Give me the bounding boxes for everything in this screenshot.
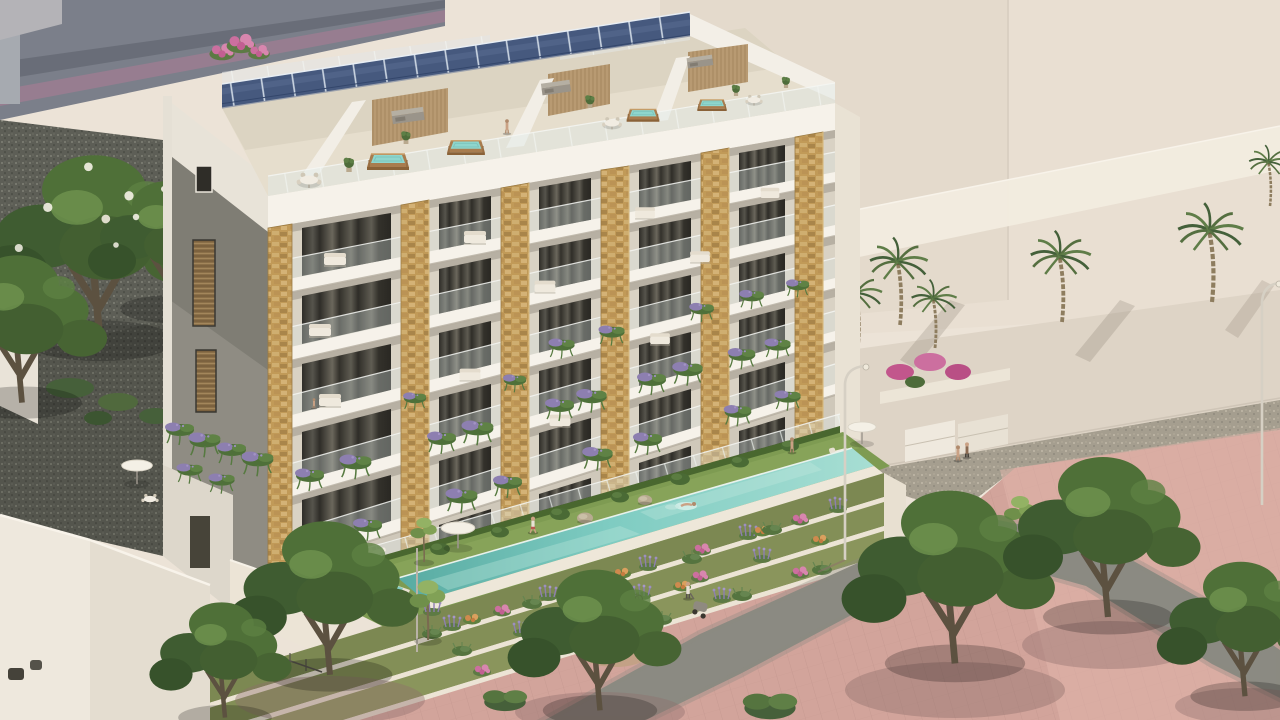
shrub (743, 694, 797, 720)
side-window-slatted (196, 350, 216, 412)
hedgeball (670, 473, 690, 485)
side-window-slatted (193, 240, 215, 326)
boulder (638, 495, 652, 505)
patio-chair (8, 668, 24, 680)
scene-svg (0, 0, 1280, 720)
side-facade (163, 96, 268, 612)
hottub (697, 100, 726, 111)
shrub-patch (84, 411, 112, 425)
furn (761, 188, 780, 199)
hedgeball (550, 508, 570, 520)
furn (324, 253, 346, 266)
furn (650, 333, 670, 345)
furn (460, 369, 481, 381)
furn (309, 324, 331, 337)
shrub-patch (98, 393, 138, 411)
furn (464, 231, 486, 244)
right-side-return (835, 103, 860, 440)
hottub (367, 154, 409, 170)
entrance-door (190, 516, 210, 568)
furn (319, 394, 341, 407)
hottub (627, 109, 660, 121)
hedgeball (731, 457, 749, 468)
furn (535, 281, 556, 293)
hedgeball (611, 492, 629, 503)
architectural-render (0, 0, 1280, 720)
hottub (447, 141, 485, 155)
furn (635, 207, 655, 219)
patio-chair (30, 660, 42, 670)
shrub (483, 690, 527, 711)
hedgeball (491, 527, 509, 538)
furn (690, 251, 710, 263)
side-window-small (196, 166, 212, 192)
hedgeball (781, 441, 799, 452)
